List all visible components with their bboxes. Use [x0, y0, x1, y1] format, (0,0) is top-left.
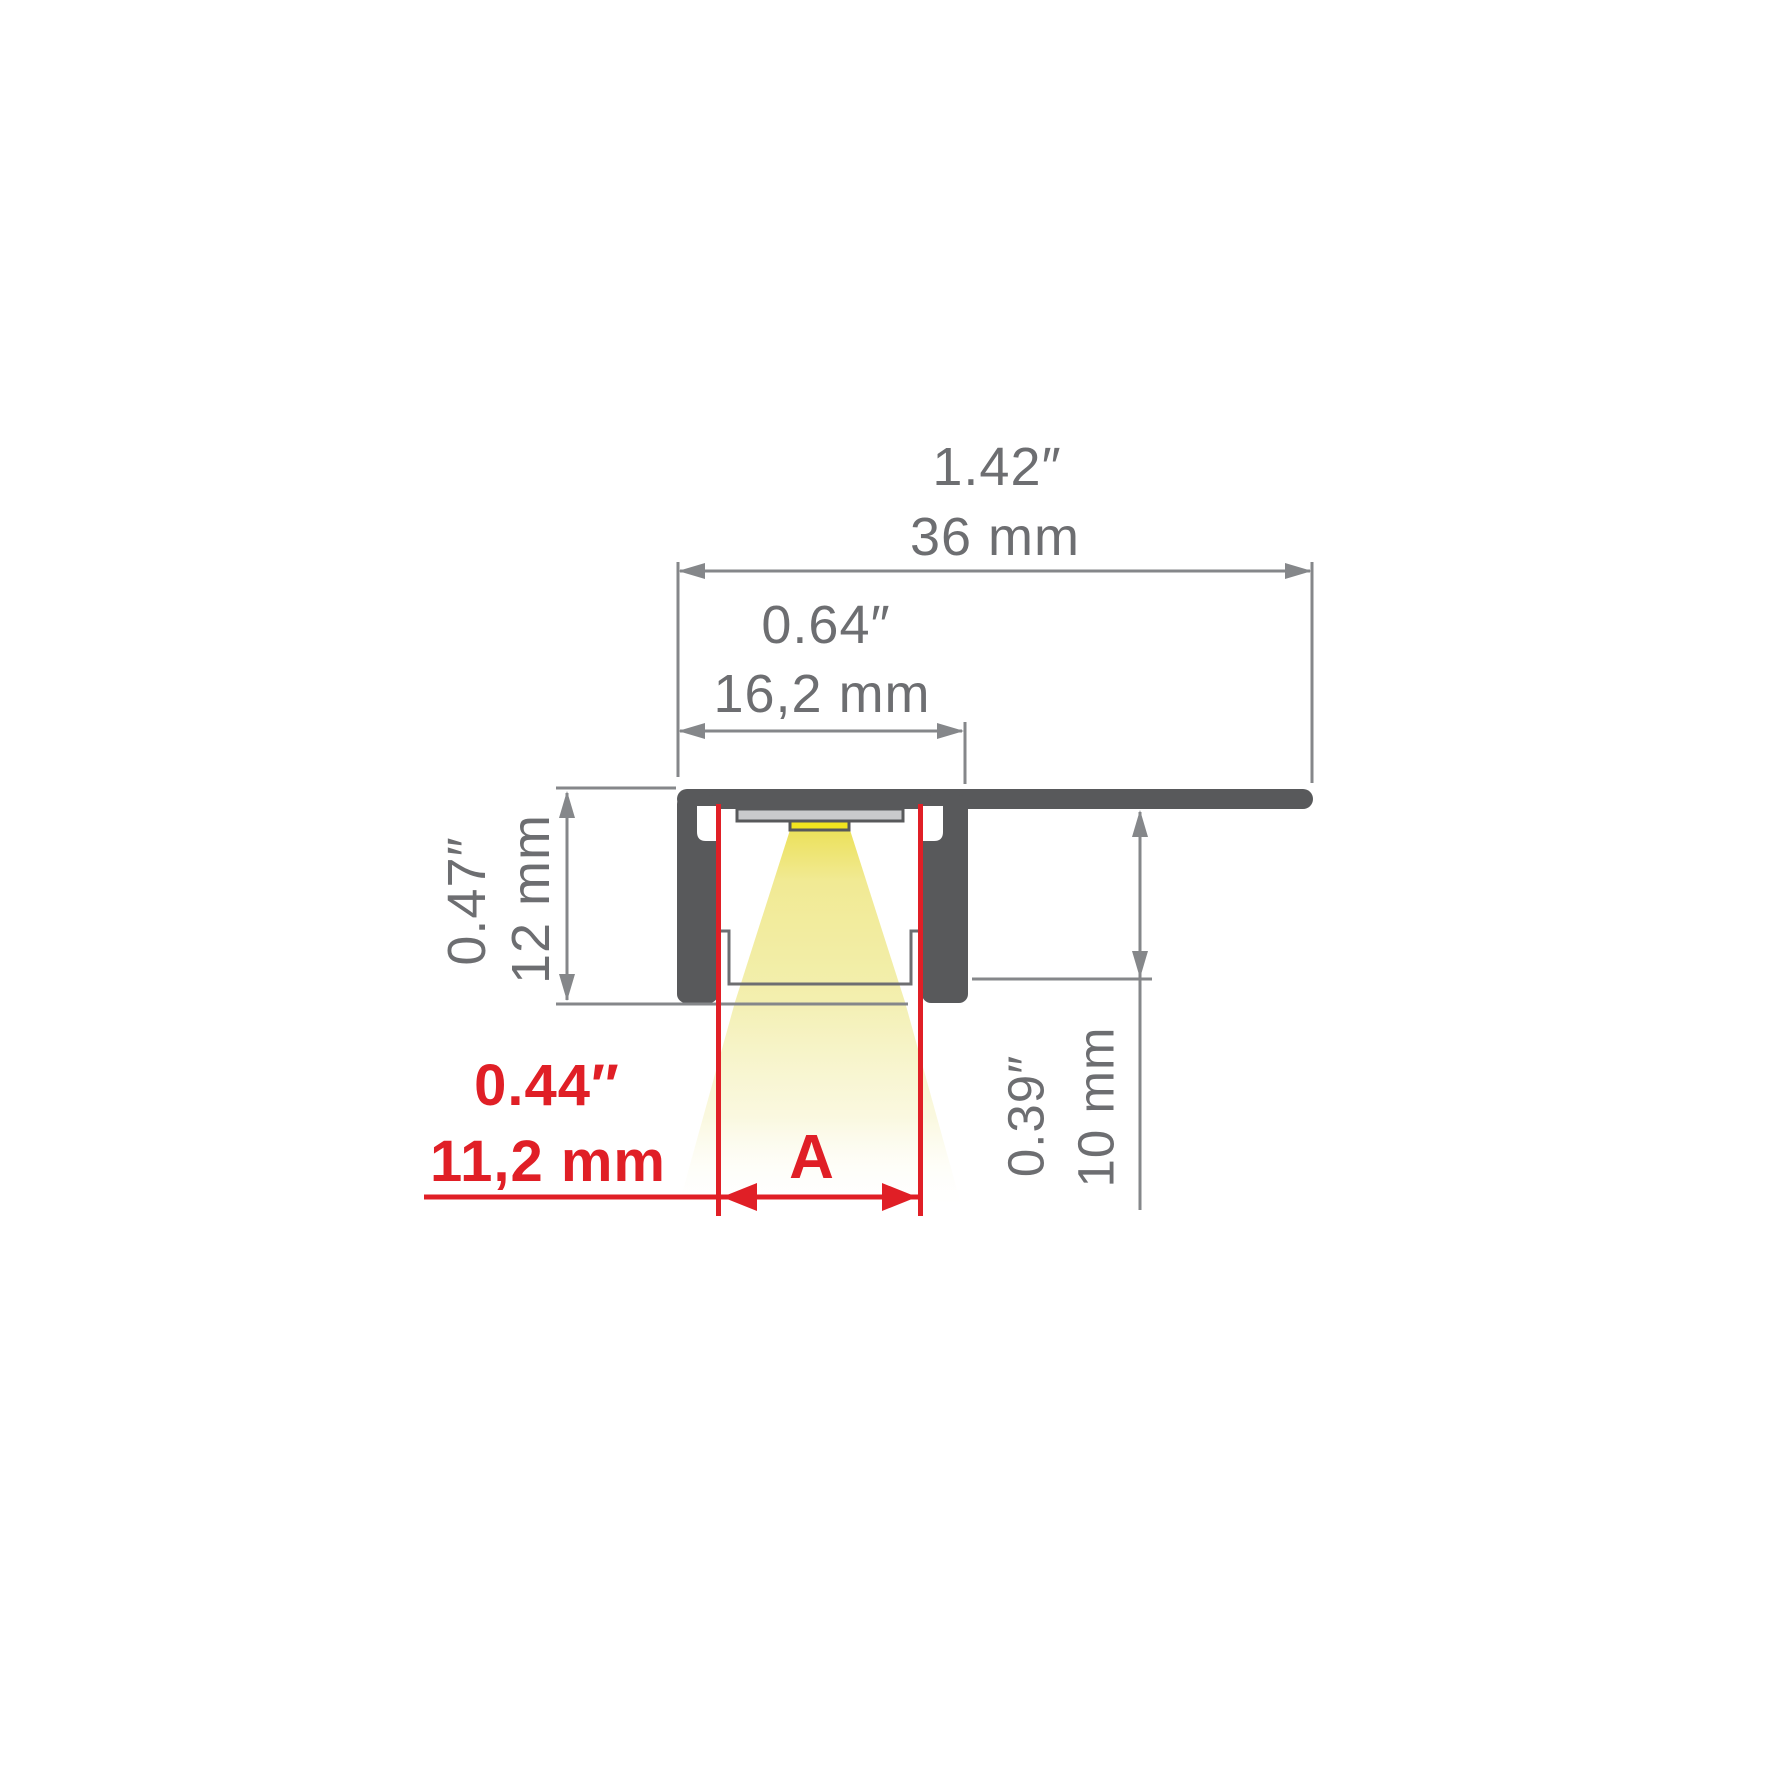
- arrow-offset-up: [1132, 810, 1148, 837]
- dim-overall-inches: 1.42″: [932, 440, 1061, 494]
- arrow-overall-left: [678, 563, 705, 579]
- dim-height-mm: 12 mm: [504, 814, 558, 984]
- dim-opening-letter: A: [789, 1127, 835, 1189]
- light-beam-inner: [735, 830, 905, 1002]
- dim-overall-mm: 36 mm: [910, 510, 1080, 564]
- dim-opening-inches: 0.44″: [474, 1057, 620, 1115]
- dim-offset-inches: 0.39″: [1001, 1055, 1052, 1177]
- led-pcb: [737, 809, 903, 821]
- profile-flange: [677, 789, 1313, 809]
- dim-inner-mm: 16,2 mm: [713, 667, 930, 721]
- profile-drawing-svg: [0, 0, 1778, 1778]
- arrow-height-down: [559, 974, 575, 1001]
- arrow-offset-down: [1132, 951, 1148, 978]
- arrow-inner-left: [678, 723, 705, 739]
- dim-inner-inches: 0.64″: [761, 598, 890, 652]
- clip-notch-right: [921, 806, 943, 841]
- led-emitter: [790, 821, 849, 830]
- arrow-height-up: [559, 791, 575, 818]
- arrow-inner-right: [937, 723, 964, 739]
- clip-notch-left: [697, 806, 718, 841]
- arrow-overall-right: [1285, 563, 1312, 579]
- dim-height-inches: 0.47″: [440, 836, 494, 965]
- dim-opening-mm: 11,2 mm: [430, 1133, 666, 1191]
- dimension-drawing: 1.42″ 36 mm 0.64″ 16,2 mm 0.47″ 12 mm 0.…: [0, 0, 1778, 1778]
- dim-offset-mm: 10 mm: [1071, 1027, 1122, 1188]
